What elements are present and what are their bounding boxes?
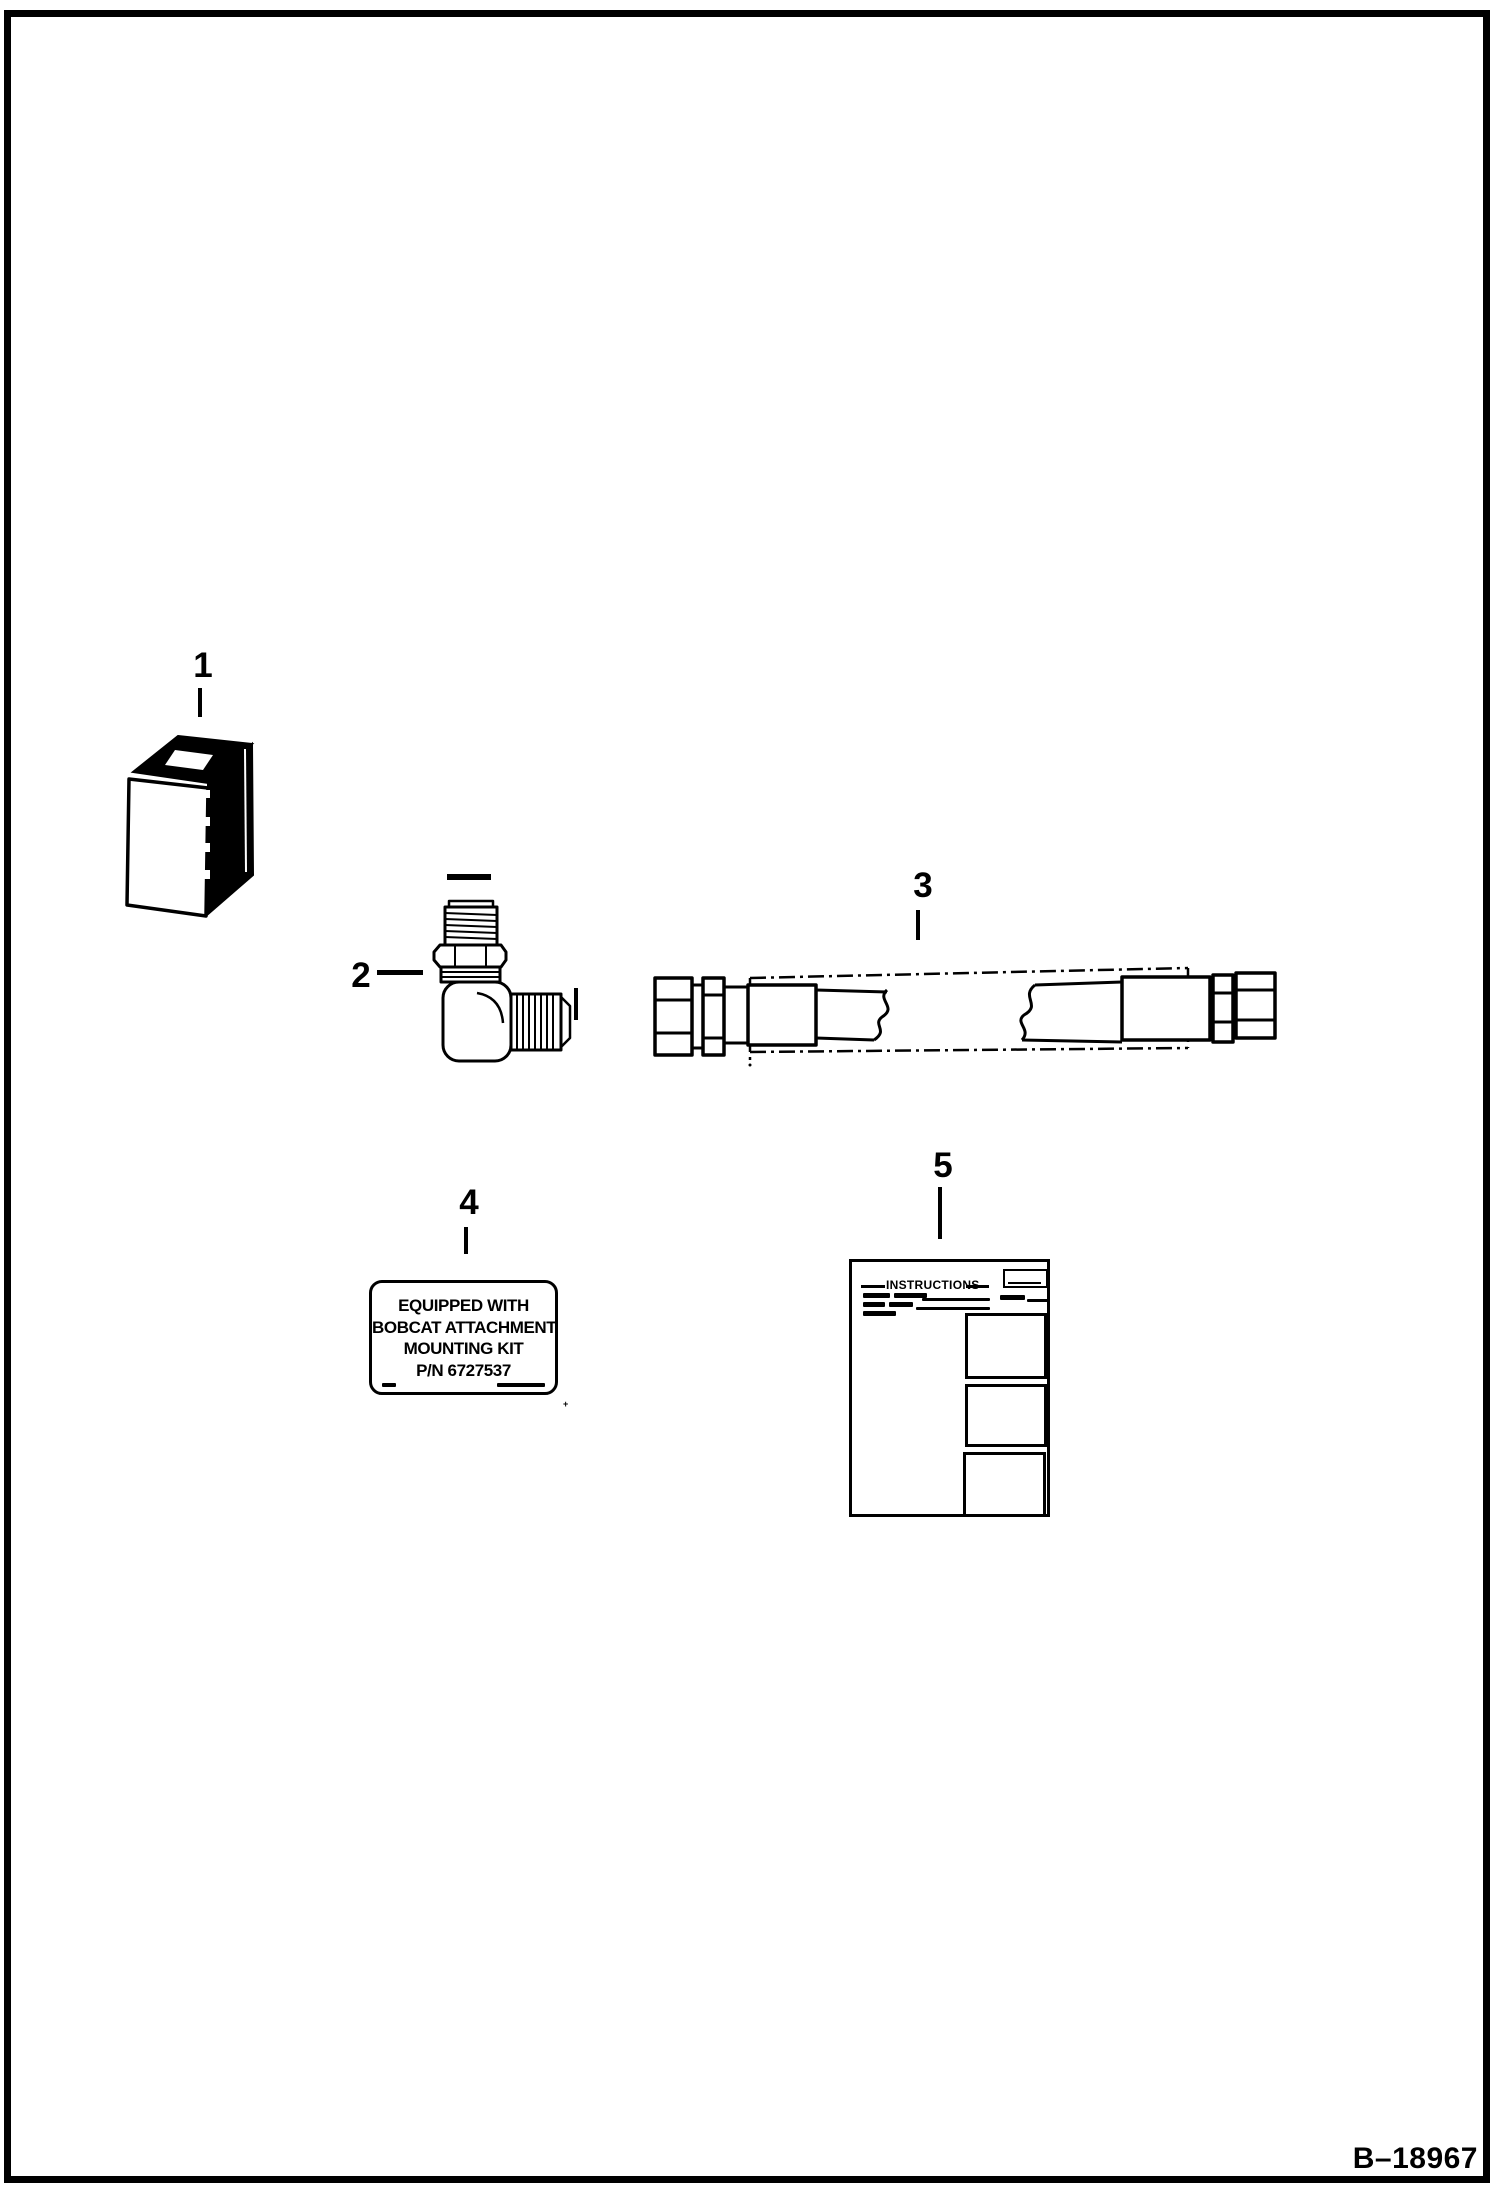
sheet-field-label — [863, 1311, 896, 1316]
part-3-hose-drawing — [640, 950, 1300, 1075]
sheet-fill-line — [922, 1298, 990, 1301]
callout-5-label: 5 — [920, 1148, 966, 1183]
callout-3-leader-line — [916, 910, 920, 940]
sheet-illustration-frame-1 — [965, 1313, 1047, 1379]
decal-line-2: BOBCAT ATTACHMENT — [372, 1317, 555, 1339]
title-right-dash — [966, 1285, 989, 1288]
callout-4-label: 4 — [446, 1185, 492, 1220]
callout-5-leader-line — [938, 1187, 942, 1239]
sheet-corner-box — [1003, 1269, 1048, 1288]
corner-box-line — [1008, 1282, 1041, 1284]
sheet-field-label — [863, 1293, 890, 1298]
callout-4-leader-line — [464, 1227, 468, 1254]
sheet-field-label — [863, 1302, 885, 1307]
callout-1-label: 1 — [180, 648, 226, 683]
sheet-field-label — [1000, 1295, 1025, 1300]
sheet-fill-line — [916, 1307, 990, 1310]
sheet-field-label — [889, 1302, 913, 1307]
callout-3-label: 3 — [900, 868, 946, 903]
decal-fine-print-right — [497, 1383, 545, 1387]
decal-line-4: P/N 6727537 — [372, 1360, 555, 1382]
sheet-illustration-frame-3 — [963, 1452, 1046, 1517]
part-5-instruction-sheet: INSTRUCTIONS — [849, 1259, 1050, 1517]
part-1-box-drawing — [118, 726, 268, 926]
registration-mark: + — [563, 1400, 568, 1409]
callout-2-leader-line — [377, 970, 423, 975]
callout-2-label: 2 — [338, 958, 384, 993]
decal-fine-print-left — [382, 1383, 396, 1387]
callout-1-leader-line — [198, 688, 202, 717]
sheet-fill-line — [1027, 1299, 1048, 1302]
sheet-illustration-frame-2 — [965, 1384, 1047, 1447]
decal-line-3: MOUNTING KIT — [372, 1338, 555, 1360]
title-left-dash — [861, 1285, 885, 1288]
decal-line-1: EQUIPPED WITH — [372, 1295, 555, 1317]
page-border — [4, 10, 1490, 2183]
part-4-decal: EQUIPPED WITH BOBCAT ATTACHMENT MOUNTING… — [369, 1280, 558, 1395]
parts-diagram-page: 1 2 — [0, 0, 1498, 2194]
figure-number: B–18967 — [1320, 2142, 1478, 2176]
part-2-elbow-fitting-drawing — [425, 865, 580, 1070]
